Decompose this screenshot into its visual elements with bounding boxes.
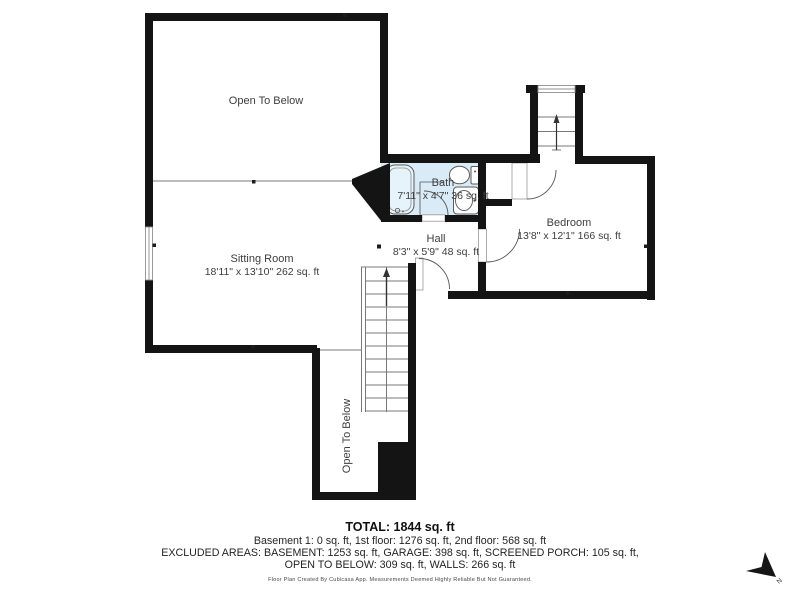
- stairs-main: [362, 267, 409, 412]
- sitting-room-dims: 18'11" x 13'10" 262 sq. ft: [205, 266, 320, 279]
- room-label-bath: Bath 7'11" x 4'7" 36 sq. ft: [397, 177, 488, 203]
- total-area-text: TOTAL: 1844 sq. ft: [0, 520, 800, 534]
- bedroom-name: Bedroom: [517, 217, 621, 230]
- room-label-bedroom: Bedroom 13'8" x 12'1" 166 sq. ft: [517, 217, 621, 243]
- hall-name: Hall: [393, 233, 479, 246]
- disclaimer-text: Floor Plan Created By Cubicasa App. Meas…: [0, 577, 800, 583]
- room-label-open-to-below-bottom: Open To Below: [341, 399, 353, 473]
- closet-door: [512, 163, 556, 199]
- summary-footer: TOTAL: 1844 sq. ft Basement 1: 0 sq. ft,…: [0, 520, 800, 583]
- stairwell-window: [538, 86, 575, 93]
- excluded-areas-text-1: EXCLUDED AREAS: BASEMENT: 1253 sq. ft, G…: [0, 548, 800, 560]
- excluded-areas-text-2: OPEN TO BELOW: 309 sq. ft, WALLS: 266 sq…: [0, 560, 800, 572]
- room-label-sitting-room: Sitting Room 18'11" x 13'10" 262 sq. ft: [205, 253, 320, 279]
- bath-name: Bath: [397, 177, 488, 190]
- hall-door: [416, 258, 450, 290]
- sitting-room-name: Sitting Room: [205, 253, 320, 266]
- floorplan-page: N Open To Below Sitting Room 18'11" x 13…: [0, 0, 800, 600]
- bedroom-dims: 13'8" x 12'1" 166 sq. ft: [517, 230, 621, 243]
- floorplan-canvas: N: [0, 0, 800, 600]
- bath-dims: 7'11" x 4'7" 36 sq. ft: [397, 190, 488, 203]
- room-label-open-to-below-top: Open To Below: [229, 95, 303, 108]
- hall-dims: 8'3" x 5'9" 48 sq. ft: [393, 246, 479, 259]
- room-label-hall: Hall 8'3" x 5'9" 48 sq. ft: [393, 233, 479, 259]
- bedroom-door: [479, 229, 520, 262]
- stairs-main-up-arrow-icon: [383, 268, 390, 306]
- sitting-room-window: [146, 227, 153, 280]
